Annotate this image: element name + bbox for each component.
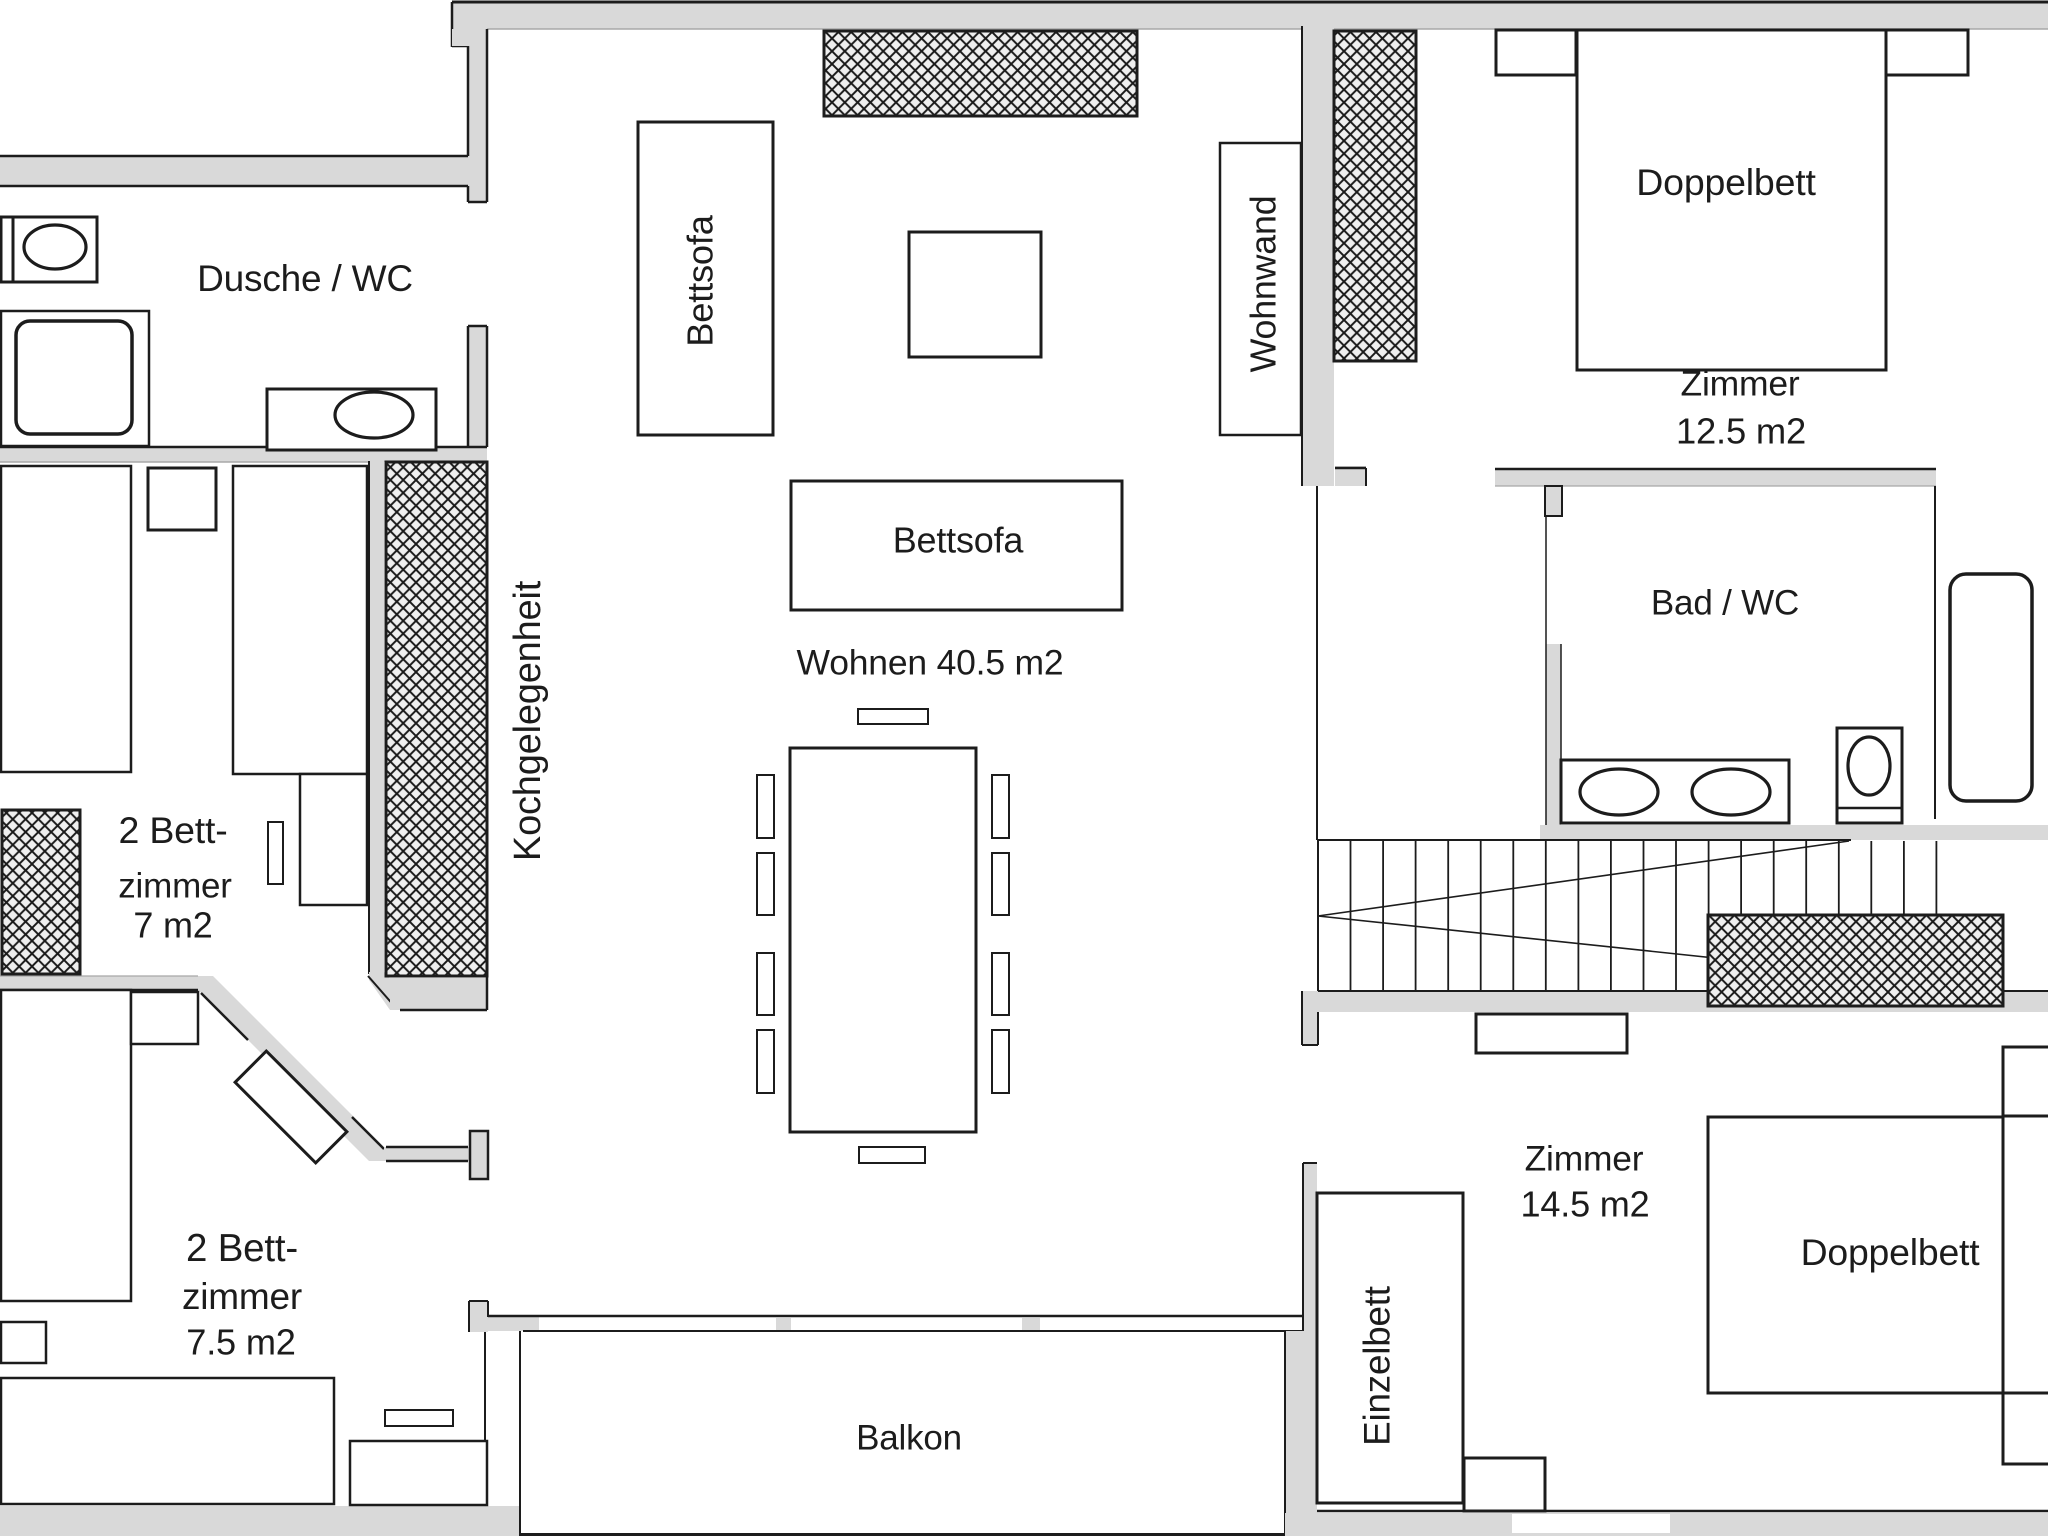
- svg-text:Balkon: Balkon: [856, 1418, 962, 1457]
- svg-text:7.5 m2: 7.5 m2: [186, 1322, 295, 1363]
- svg-text:Bad / WC: Bad / WC: [1651, 583, 1799, 622]
- svg-text:12.5 m2: 12.5 m2: [1676, 411, 1806, 452]
- svg-text:Dusche / WC: Dusche / WC: [197, 258, 413, 299]
- svg-text:Kochgelegenheit: Kochgelegenheit: [507, 580, 549, 861]
- svg-text:2 Bett-: 2 Bett-: [118, 809, 227, 851]
- svg-text:Einzelbett: Einzelbett: [1357, 1286, 1398, 1446]
- svg-text:Wohnwand: Wohnwand: [1243, 196, 1283, 373]
- svg-text:7 m2: 7 m2: [133, 905, 212, 946]
- svg-text:Doppelbett: Doppelbett: [1801, 1231, 1981, 1273]
- svg-text:Zimmer: Zimmer: [1525, 1138, 1644, 1178]
- svg-text:Zimmer: Zimmer: [1680, 363, 1799, 403]
- svg-text:zimmer: zimmer: [118, 866, 232, 905]
- svg-text:14.5 m2: 14.5 m2: [1521, 1184, 1650, 1225]
- svg-text:Bettsofa: Bettsofa: [893, 520, 1025, 561]
- svg-text:zimmer: zimmer: [182, 1276, 302, 1317]
- svg-text:2 Bett-: 2 Bett-: [186, 1227, 298, 1270]
- svg-text:Wohnen 40.5 m2: Wohnen 40.5 m2: [797, 642, 1064, 682]
- svg-text:Doppelbett: Doppelbett: [1636, 161, 1816, 203]
- svg-text:Bettsofa: Bettsofa: [680, 214, 721, 347]
